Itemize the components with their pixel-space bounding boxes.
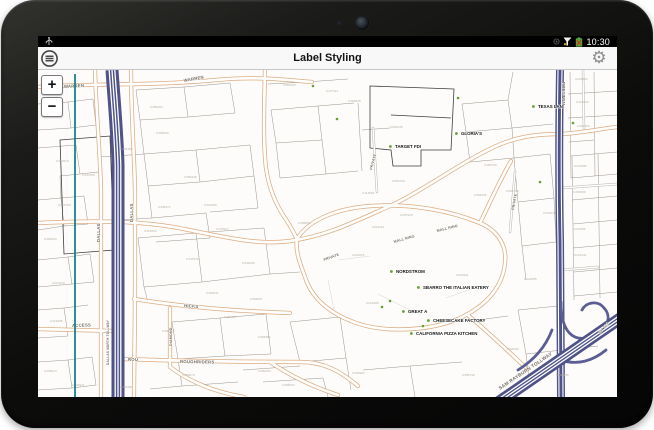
- parcel-label: C380763: [484, 163, 497, 167]
- parcel-label: C337915: [400, 213, 413, 217]
- road-label: HICKS: [184, 303, 199, 309]
- front-camera: [355, 16, 369, 30]
- map-container: + −: [38, 70, 617, 397]
- parcel-label: C091238: [390, 125, 403, 129]
- road-label: ROU: [128, 357, 138, 362]
- parcel-label: C213305: [50, 319, 63, 323]
- screenshot-stage: 10:30 Label Styling ⚙ + −: [0, 0, 654, 430]
- road-label: DALLAS: [96, 223, 101, 242]
- parcel-label: C366070: [182, 373, 195, 377]
- parcel-label: C358749: [462, 373, 475, 377]
- parcel-label: C215009: [573, 190, 586, 194]
- parcel-label: C356493: [150, 105, 163, 109]
- poi-marker-icon: [455, 132, 458, 135]
- parcel-label: C364007: [250, 297, 263, 301]
- parcel-label: C356471: [158, 205, 171, 209]
- parcel-label: C454436: [474, 193, 487, 197]
- parcel-label: C218802: [575, 77, 588, 81]
- poi-label: TARGET FDI: [395, 144, 421, 149]
- parcel-label: C364561: [258, 335, 271, 339]
- parcel-label: C113964: [362, 191, 375, 195]
- parcel-label: C190480: [120, 385, 133, 389]
- battery-warning-icon: [575, 37, 583, 47]
- poi-label: NORDSTROM: [396, 269, 425, 274]
- parcel-label: C211509: [573, 227, 586, 231]
- parcel-label: C214852: [577, 124, 590, 128]
- parcel-label: C213941: [456, 273, 469, 277]
- parcel-label: C363829: [156, 131, 169, 135]
- notification-dim-icon: [553, 38, 560, 45]
- parcel-label: C332983: [352, 371, 365, 375]
- poi-marker-icon: [389, 300, 392, 303]
- parcel-label: C347388: [82, 173, 95, 177]
- parcel-label: C364004: [44, 237, 57, 241]
- poi-marker-icon: [532, 105, 535, 108]
- page-title: Label Styling: [38, 52, 617, 64]
- poi-label: CHEESECAKE FACTORY: [433, 318, 486, 323]
- road-label: DALLAS: [129, 203, 134, 222]
- parcel-label: C377111: [326, 89, 338, 93]
- status-bar: 10:30: [38, 36, 617, 47]
- parcel-label: C214605: [524, 277, 537, 281]
- parcel-label: C254007: [224, 315, 237, 319]
- poi-label: TEXAS LAN: [538, 104, 563, 109]
- parcel-label: C214802: [576, 100, 589, 104]
- parcel-label: C363441: [206, 291, 219, 295]
- parcel-label: C364780: [120, 147, 133, 151]
- road-label: DALLAS NORTH TOLLWAY: [106, 319, 110, 365]
- parcel-label: C394766: [506, 189, 519, 193]
- poi-marker-icon: [422, 325, 425, 328]
- poi-marker-icon: [389, 145, 392, 148]
- parcel-label: C091113: [372, 225, 384, 229]
- poi-label: SBARRO THE ITALIAN EATERY: [423, 285, 489, 290]
- parcel-label: C344069: [242, 261, 255, 265]
- signal-warning-icon: [563, 37, 572, 46]
- parcel-label: C363204: [283, 83, 296, 87]
- parcel-label: C363750: [58, 203, 71, 207]
- poi-marker-icon: [427, 319, 430, 322]
- poi-marker-icon: [336, 118, 339, 121]
- parcel-label: C211508: [574, 164, 587, 168]
- poi-label: GREAT A: [408, 309, 428, 314]
- poi-marker-icon: [402, 310, 405, 313]
- zoom-in-button[interactable]: +: [41, 75, 63, 95]
- parcel-label: C213141: [574, 253, 587, 257]
- parcel-label: C363828: [348, 99, 361, 103]
- parcel-label: C216200: [506, 347, 519, 351]
- light-sensor: [337, 21, 341, 25]
- device-screen: 10:30 Label Styling ⚙ + −: [38, 36, 617, 397]
- app-bar: Label Styling ⚙: [38, 47, 617, 70]
- parcel-label: C163195: [556, 373, 569, 377]
- parcel-label: C358448: [184, 175, 197, 179]
- parcel-label: C210470: [52, 281, 65, 285]
- parcel-label: C313263: [144, 229, 157, 233]
- parcel-label: C303973: [44, 369, 57, 373]
- poi-marker-icon: [572, 122, 575, 125]
- parcel-label: C363679: [56, 159, 69, 163]
- parcel-label: C211974: [352, 253, 365, 257]
- gear-icon: ⚙: [591, 48, 606, 67]
- parcel-label: C360204: [258, 369, 271, 373]
- poi-marker-icon: [457, 97, 460, 100]
- parcel-label: C313070: [543, 211, 556, 215]
- parcel-label: C091230: [392, 179, 405, 183]
- settings-button[interactable]: ⚙: [589, 48, 609, 68]
- parcel-label: C368094: [282, 383, 295, 387]
- poi-marker-icon: [539, 181, 542, 184]
- poi-marker-icon: [312, 85, 315, 88]
- road-label: ROUGHRIDERS: [180, 359, 215, 365]
- status-time: 10:30: [586, 37, 610, 47]
- map-canvas[interactable]: C368197C363679C363750C364004C210470C2133…: [38, 70, 617, 397]
- screen-edge-glow-left: [74, 74, 76, 397]
- usb-icon: [45, 37, 53, 46]
- poi-marker-icon: [390, 270, 393, 273]
- road-label: PRESTON: [561, 82, 566, 105]
- road-label: DIAMOND: [169, 327, 173, 346]
- zoom-controls: + −: [41, 75, 63, 119]
- parcel-label: C347517: [216, 227, 229, 231]
- poi-label: CALIFORNIA PIZZA KITCHEN: [416, 331, 477, 336]
- poi-marker-icon: [381, 306, 384, 309]
- parcel-label: C212989: [366, 301, 379, 305]
- zoom-out-button[interactable]: −: [41, 97, 63, 117]
- poi-marker-icon: [417, 286, 420, 289]
- poi-label: GLORIA'S: [461, 131, 482, 136]
- parcel-label: C347516: [186, 257, 199, 261]
- poi-marker-icon: [410, 332, 413, 335]
- parcel-label: C356064: [298, 221, 311, 225]
- parcel-label: C313283: [204, 203, 217, 207]
